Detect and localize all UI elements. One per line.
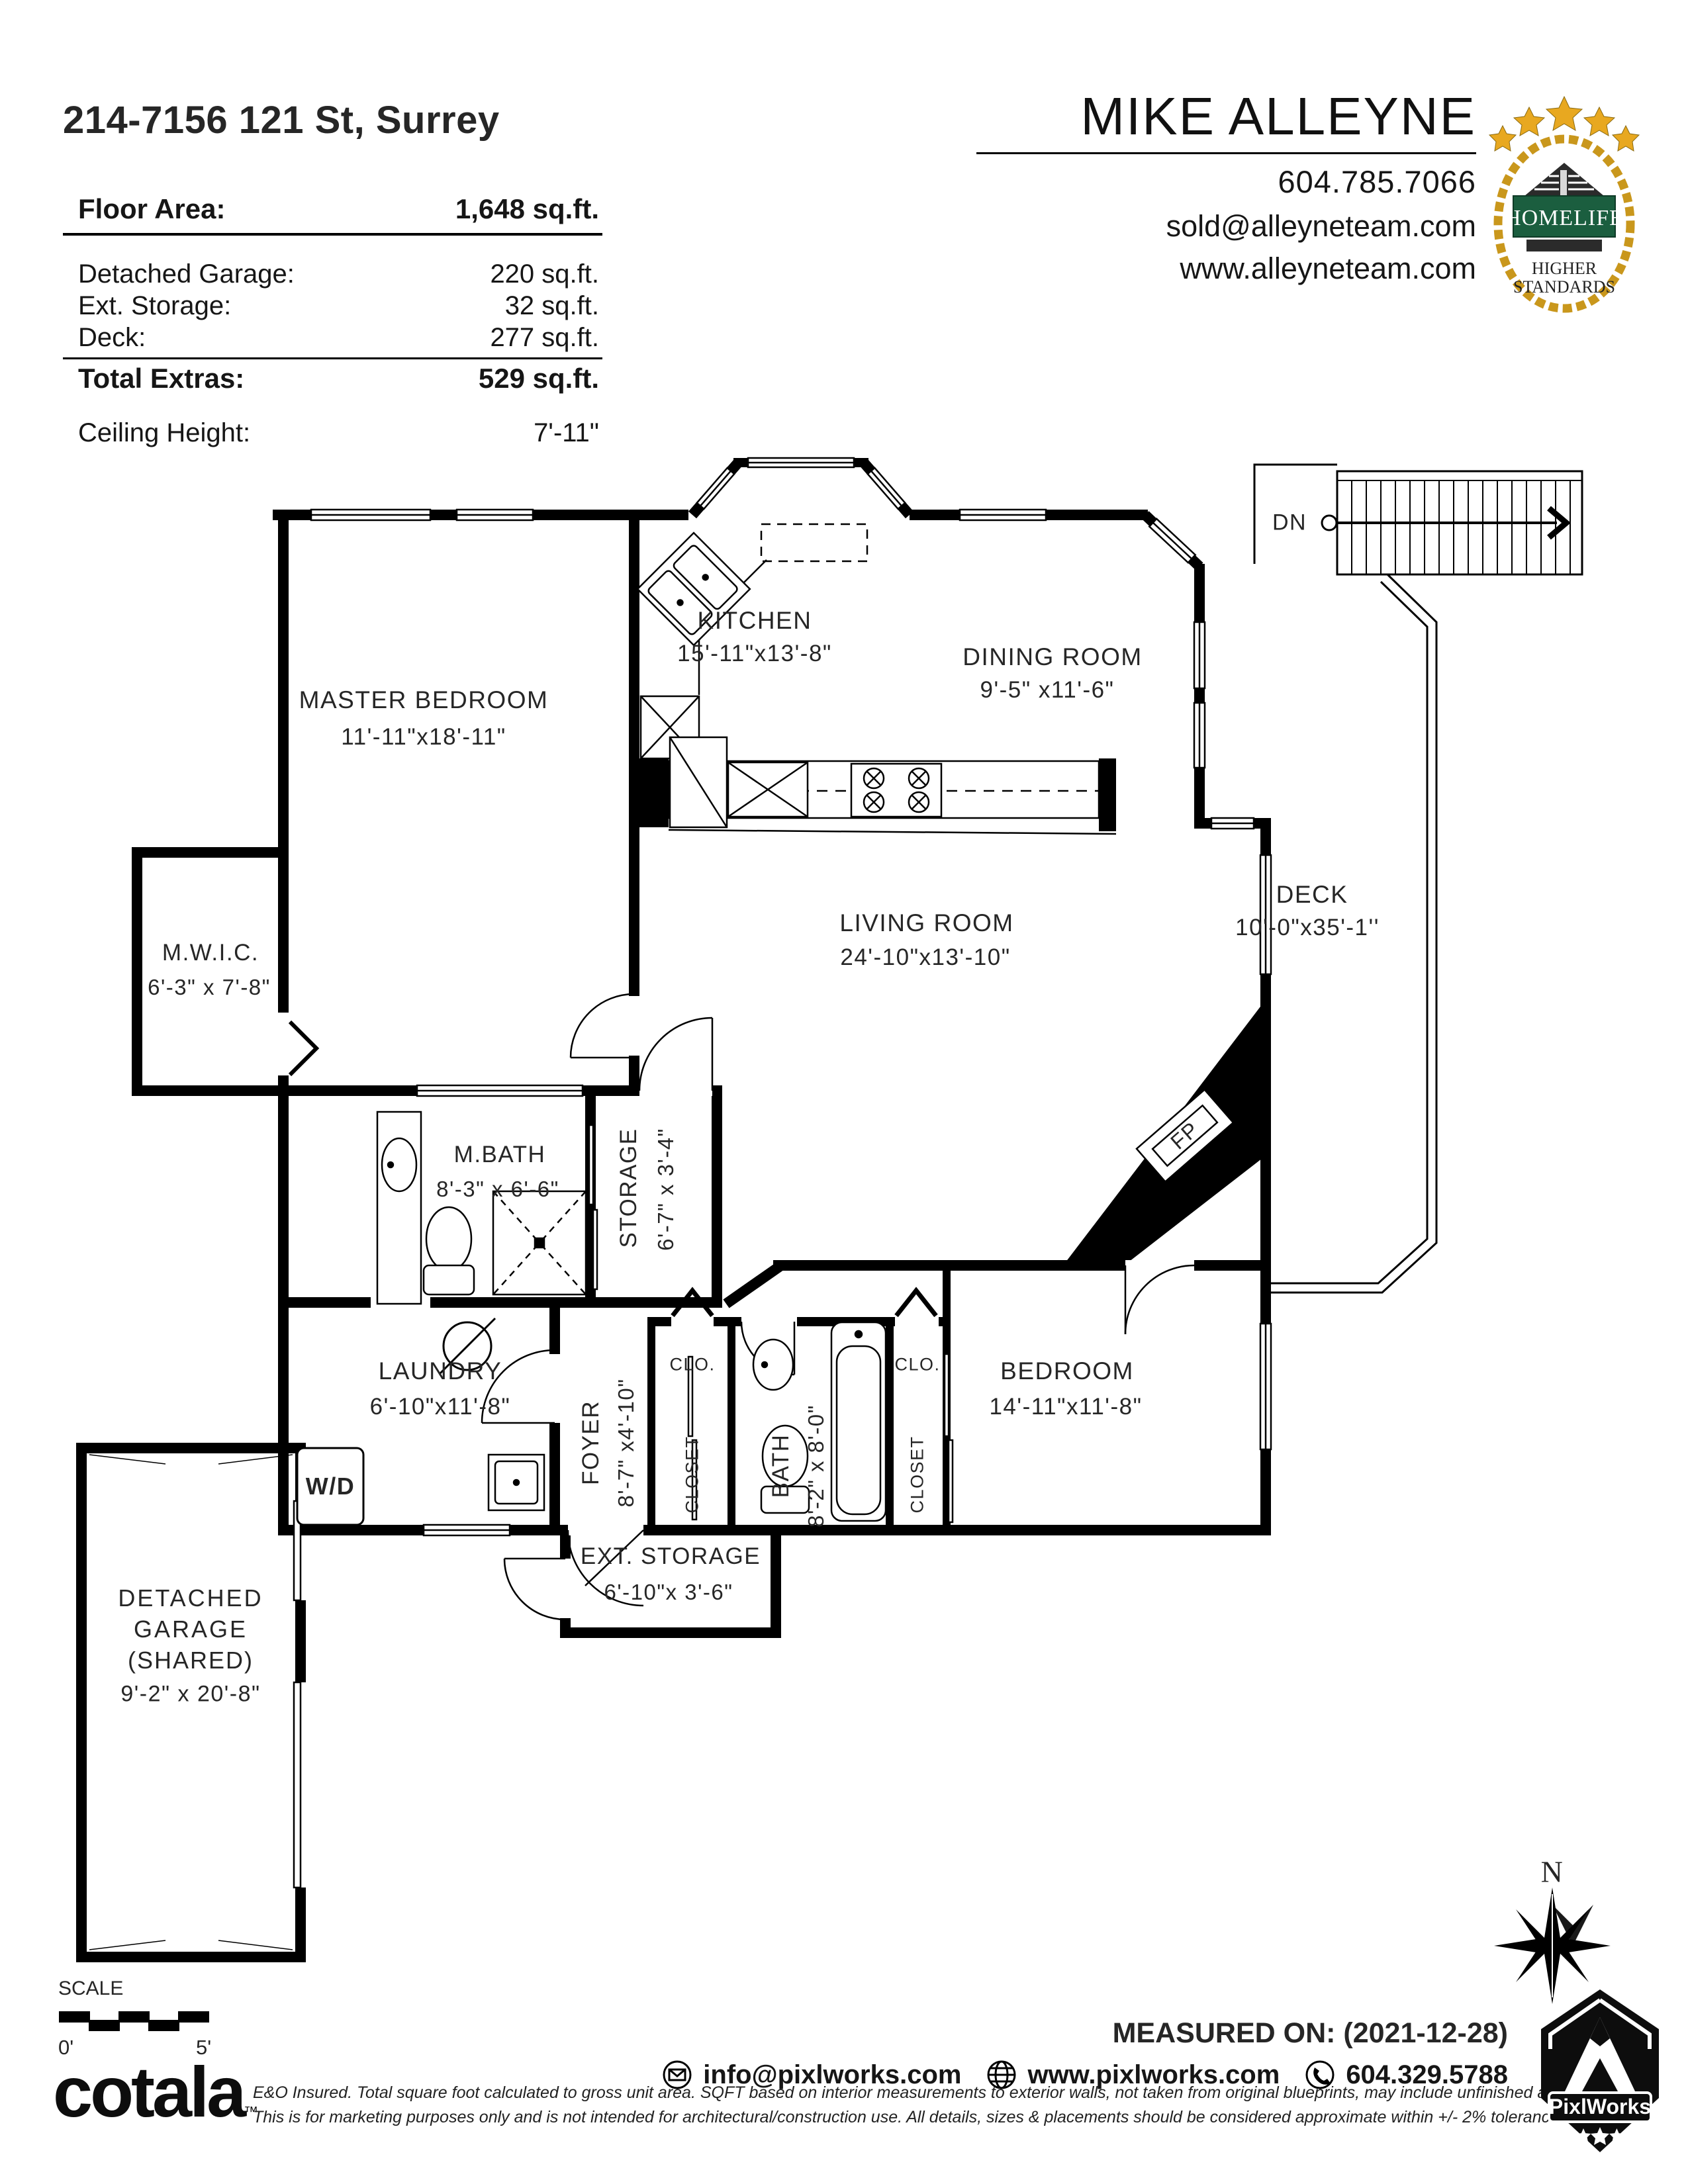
agent-website[interactable]: www.alleyneteam.com xyxy=(976,251,1476,286)
divider xyxy=(63,357,602,359)
extra-storage-label: Ext. Storage: xyxy=(78,291,231,321)
stairs-down-label: DN xyxy=(1272,510,1307,536)
closet-label-clo2: CLO. xyxy=(894,1355,940,1375)
floorplan-drawing xyxy=(0,0,1688,2184)
clo2-bifold-icon xyxy=(896,1291,936,1316)
diagonal-walls xyxy=(692,462,1199,1304)
ceiling-height-value: 7'-11" xyxy=(534,418,599,448)
room-label-foyer: FOYER xyxy=(578,1400,604,1485)
closet-label-closet2: CLOSET xyxy=(908,1435,928,1513)
room-label-master: MASTER BEDROOM xyxy=(299,686,549,714)
room-label-deck: DECK xyxy=(1276,881,1348,909)
homelife-logo: HOMELIFE HIGHER STANDARDS xyxy=(1488,85,1640,316)
mwic-bifold-icon xyxy=(290,1022,316,1075)
ext-storage-door xyxy=(504,1559,565,1619)
page-title: 214-7156 121 St, Surrey xyxy=(63,98,500,142)
room-dims-mbath: 8'-3" x 6'-6" xyxy=(436,1177,559,1202)
room-label-bedroom: BEDROOM xyxy=(1000,1357,1134,1385)
closet-label-closet1: CLOSET xyxy=(682,1435,703,1513)
room-label-living: LIVING ROOM xyxy=(839,909,1013,937)
room-label-bath: BATH xyxy=(768,1434,794,1498)
agent-phone: 604.785.7066 xyxy=(976,163,1476,200)
extra-garage-value: 220 sq.ft. xyxy=(490,259,599,289)
floorplan-page: 214-7156 121 St, Surrey Floor Area: 1,64… xyxy=(0,0,1688,2184)
cotala-logo: cotala™ xyxy=(53,2050,258,2133)
room-dims-bedroom: 14'-11"x11'-8" xyxy=(989,1394,1142,1420)
laundry-sink xyxy=(489,1455,544,1510)
disclaimer-line1: E&O Insured. Total square foot calculate… xyxy=(253,2083,1511,2103)
washer-dryer-label: W/D xyxy=(306,1473,355,1500)
extra-deck-value: 277 sq.ft. xyxy=(490,323,599,353)
room-label-mbath: M.BATH xyxy=(454,1142,546,1168)
floor-area-value: 1,648 sq.ft. xyxy=(455,193,599,225)
scale-label: SCALE xyxy=(58,1978,123,2000)
room-label-kitchen: KITCHEN xyxy=(698,607,812,635)
homelife-tagline2: STANDARDS xyxy=(1513,277,1615,296)
total-extras-value: 529 sq.ft. xyxy=(479,363,599,394)
room-dims-master: 11'-11"x18'-11" xyxy=(341,724,506,751)
homelife-tagline1: HIGHER xyxy=(1532,259,1597,278)
room-dims-deck: 10'-0"x35'-1'' xyxy=(1235,915,1380,941)
pixlworks-logo: PixlWorks xyxy=(1517,1985,1683,2164)
ceiling-height-label: Ceiling Height: xyxy=(78,418,250,448)
garage-label-3: (SHARED) xyxy=(128,1647,254,1674)
homelife-brand-text: HOMELIFE xyxy=(1505,206,1624,230)
room-dims-extstorage: 6'-10"x 3'-6" xyxy=(604,1580,733,1605)
extra-storage-value: 32 sq.ft. xyxy=(505,291,599,321)
bathtub xyxy=(831,1322,886,1521)
agent-email[interactable]: sold@alleyneteam.com xyxy=(976,209,1476,244)
mbath-fixtures xyxy=(377,1112,586,1304)
kitchen-fridge xyxy=(670,737,727,827)
room-label-laundry: LAUNDRY xyxy=(379,1357,502,1385)
garage-dims: 9'-2" x 20'-8" xyxy=(120,1682,260,1707)
scale-bar xyxy=(60,2012,209,2030)
room-dims-laundry: 6'-10"x11'-8" xyxy=(370,1394,511,1420)
disclaimer-line2: This is for marketing purposes only and … xyxy=(253,2108,1511,2127)
bedroom-door xyxy=(1125,1265,1194,1334)
room-dims-kitchen: 15'-11"x13'-8" xyxy=(677,641,832,667)
room-dims-foyer: 8'-7" x4'-10" xyxy=(614,1379,639,1508)
cotala-logo-text: cotala xyxy=(53,2052,244,2132)
room-label-dining: DINING ROOM xyxy=(962,643,1142,671)
room-dims-living: 24'-10"x13'-10" xyxy=(840,944,1010,971)
room-dims-bath: 8'-2" x 8'-0" xyxy=(804,1404,829,1527)
room-dims-storage: 6'-7" x 3'-4" xyxy=(653,1128,679,1251)
garage-label-1: DETACHED xyxy=(118,1584,263,1612)
room-label-storage: STORAGE xyxy=(616,1128,642,1248)
closet-label-clo1: CLO. xyxy=(669,1355,715,1375)
pixlworks-logo-text: PixlWorks xyxy=(1549,2095,1651,2118)
homelife-pyramid-icon xyxy=(1524,163,1604,196)
garage-label-2: GARAGE xyxy=(134,1615,248,1643)
measured-on: MEASURED ON: (2021-12-28) xyxy=(1113,2017,1508,2050)
master-door xyxy=(571,994,634,1058)
floor-area-label: Floor Area: xyxy=(78,193,225,225)
agent-block: MIKE ALLEYNE 604.785.7066 sold@alleynete… xyxy=(976,86,1476,286)
kitchen-cooktop xyxy=(851,764,941,817)
shower xyxy=(493,1191,586,1295)
extra-deck-label: Deck: xyxy=(78,323,146,353)
room-dims-mwic: 6'-3" x 7'-8" xyxy=(148,975,271,1000)
divider xyxy=(63,233,602,236)
divider xyxy=(976,152,1476,154)
compass-north-label: N xyxy=(1541,1854,1564,1889)
windows xyxy=(294,458,1271,1888)
total-extras-label: Total Extras: xyxy=(78,363,244,394)
room-label-mwic: M.W.I.C. xyxy=(162,940,259,966)
room-dims-dining: 9'-5" x11'-6" xyxy=(980,677,1115,704)
footer-disclaimer: E&O Insured. Total square foot calculate… xyxy=(253,2083,1511,2127)
extra-garage-label: Detached Garage: xyxy=(78,259,295,289)
room-label-extstorage: EXT. STORAGE xyxy=(581,1543,761,1570)
kitchen-micro xyxy=(728,762,808,817)
living-hall-door xyxy=(639,1018,712,1091)
agent-name: MIKE ALLEYNE xyxy=(976,86,1476,147)
